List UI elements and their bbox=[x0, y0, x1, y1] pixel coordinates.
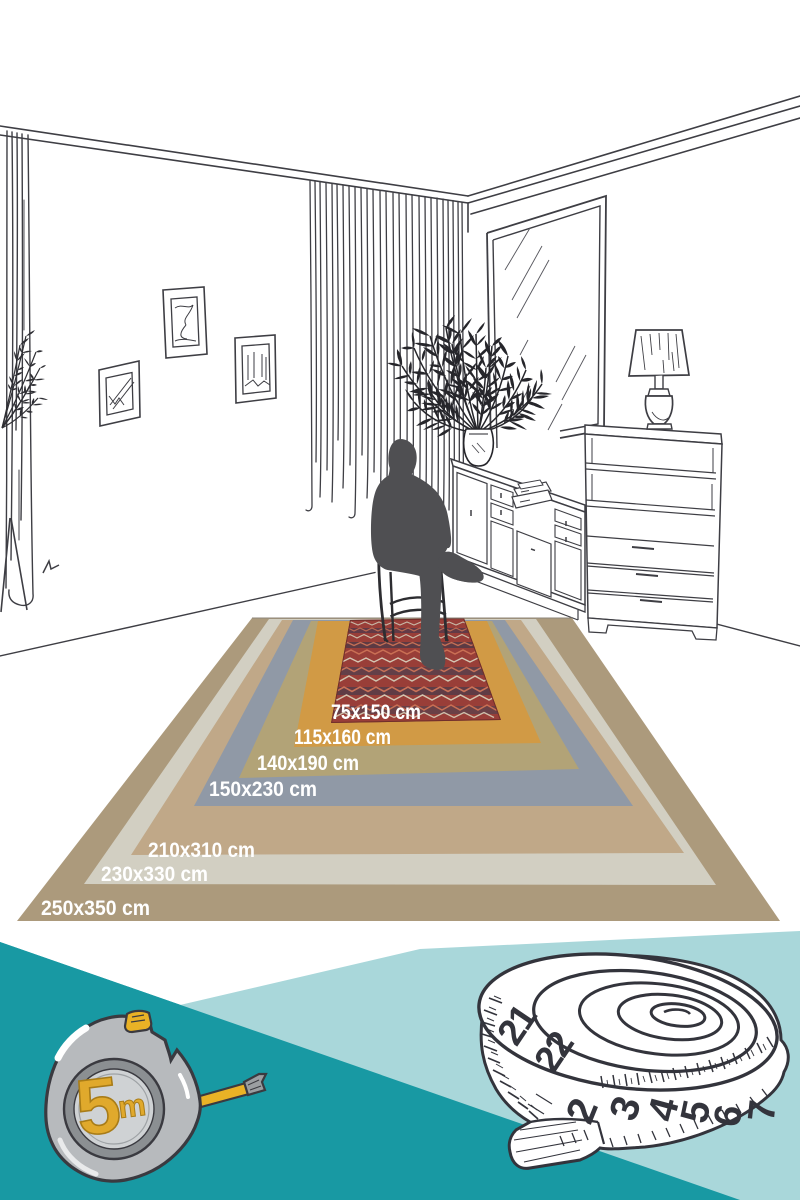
svg-text:140x190 cm: 140x190 cm bbox=[257, 751, 359, 775]
svg-text:75x150 cm: 75x150 cm bbox=[331, 700, 421, 724]
svg-text:7: 7 bbox=[741, 1098, 785, 1123]
svg-text:m: m bbox=[116, 1087, 148, 1125]
svg-text:115x160 cm: 115x160 cm bbox=[294, 725, 391, 749]
svg-text:230x330 cm: 230x330 cm bbox=[101, 862, 208, 886]
svg-text:150x230 cm: 150x230 cm bbox=[209, 777, 317, 801]
svg-text:210x310 cm: 210x310 cm bbox=[148, 838, 255, 862]
svg-text:250x350 cm: 250x350 cm bbox=[41, 896, 150, 920]
